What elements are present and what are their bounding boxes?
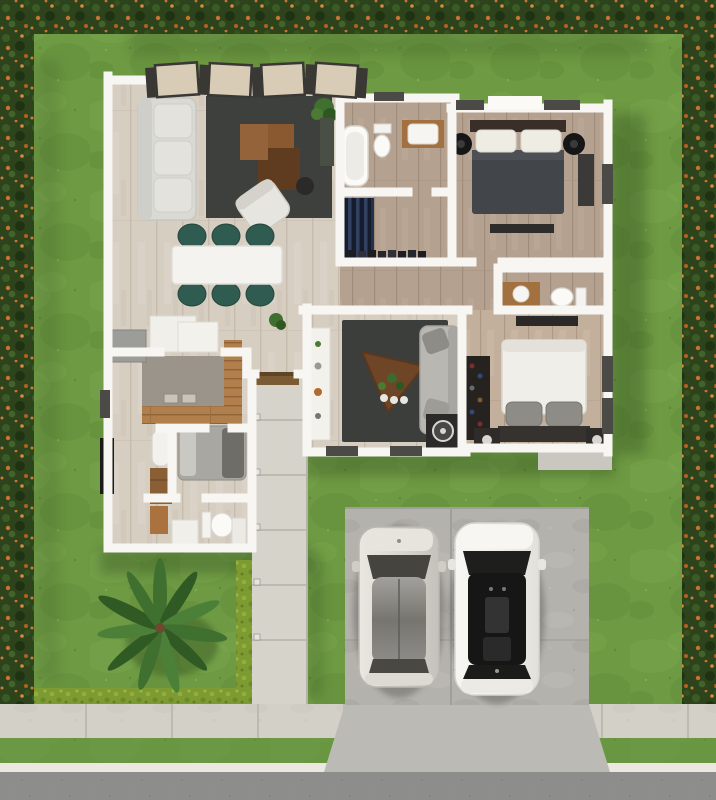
east-window-2 bbox=[602, 356, 613, 392]
floor-plan-render bbox=[0, 0, 716, 800]
table-plant-1 bbox=[387, 373, 397, 383]
hedge-left bbox=[0, 0, 34, 704]
nightstand-1-right-top bbox=[570, 140, 578, 148]
side-table bbox=[296, 177, 314, 195]
hedge-top bbox=[0, 0, 716, 34]
toilet-tank-top bbox=[374, 124, 391, 133]
bath3-vanity bbox=[172, 520, 198, 546]
dining-table bbox=[172, 246, 282, 284]
table-dish-3 bbox=[400, 396, 408, 404]
pergola-panel-1 bbox=[155, 62, 199, 97]
toilet-tank-right bbox=[576, 288, 586, 306]
wardrobe-shelf bbox=[464, 356, 490, 440]
doormat-stripe bbox=[253, 372, 299, 376]
sedan-interior-dot-2 bbox=[502, 587, 506, 591]
nightstand-1-left-top bbox=[457, 140, 465, 148]
vanity-right-sink bbox=[513, 286, 529, 302]
living-room bbox=[138, 96, 337, 236]
hedge-right bbox=[682, 0, 716, 704]
bed1-pillow-left bbox=[476, 130, 516, 152]
table-dish-2 bbox=[390, 396, 398, 404]
bath3-cabinet bbox=[232, 518, 246, 544]
scene-canvas bbox=[0, 0, 716, 800]
bedroom1-window-left bbox=[456, 100, 484, 110]
water-heater bbox=[152, 430, 170, 466]
front-walkway bbox=[252, 370, 307, 704]
refrigerator bbox=[110, 330, 146, 362]
east-window-3 bbox=[602, 398, 613, 434]
table-dish-1 bbox=[380, 394, 388, 402]
dresser bbox=[578, 154, 594, 206]
suv-rear-window bbox=[369, 659, 429, 673]
console-decor-bowl bbox=[315, 413, 321, 419]
pergola-panel-3 bbox=[261, 63, 305, 97]
daybed-pillow bbox=[180, 430, 196, 476]
suv-emblem bbox=[397, 539, 401, 543]
palm-trunk bbox=[155, 623, 165, 633]
daybed-throw bbox=[222, 428, 244, 478]
west-window bbox=[100, 390, 110, 418]
foot-bench bbox=[490, 224, 554, 233]
sedan-hood bbox=[461, 525, 533, 549]
sedan-interior-rear bbox=[483, 637, 511, 661]
sedan-windshield bbox=[463, 551, 531, 575]
coffee-table-shade bbox=[240, 124, 268, 160]
toilet-tank-lower bbox=[202, 512, 211, 538]
table-plant-3 bbox=[378, 382, 386, 390]
toilet-bowl-lower bbox=[211, 513, 233, 537]
sedan-mirror-left bbox=[448, 559, 456, 570]
sedan-mirror-right bbox=[538, 559, 546, 570]
pergola-panels bbox=[145, 62, 368, 98]
family-room bbox=[306, 320, 460, 448]
console-decor-figure bbox=[314, 388, 322, 396]
bedroom1-sill-panel bbox=[488, 96, 542, 109]
suv-mirror-right bbox=[438, 561, 446, 572]
toilet-bowl-top bbox=[374, 135, 390, 157]
suv-windshield bbox=[367, 555, 431, 579]
sedan-interior-console bbox=[485, 597, 509, 633]
suv-tailgate bbox=[365, 673, 433, 685]
bath3-wood-shelf bbox=[150, 506, 168, 534]
toilet-bowl-right bbox=[551, 288, 573, 306]
pergola-panel-2 bbox=[208, 63, 252, 97]
sideboard bbox=[320, 118, 334, 166]
bed2-pillow-left bbox=[506, 402, 542, 426]
sedan-emblem bbox=[495, 669, 499, 673]
sedan-trunk bbox=[461, 679, 533, 693]
white-sedan bbox=[448, 523, 546, 704]
low-hedge-vertical bbox=[236, 560, 252, 704]
sedan-interior-dot-1 bbox=[489, 587, 493, 591]
bed2-pillow-right bbox=[546, 402, 582, 426]
speaker-dot bbox=[440, 428, 446, 434]
media-console bbox=[516, 316, 578, 326]
kitchen-sink-right bbox=[182, 394, 196, 403]
silver-suv bbox=[352, 526, 446, 698]
vanity-sink-top bbox=[408, 124, 438, 144]
bathtub-basin bbox=[346, 132, 364, 180]
bed2-base bbox=[498, 426, 590, 442]
table-plant-2 bbox=[396, 382, 404, 390]
bed2-fold bbox=[502, 340, 586, 352]
pergola-panel-4 bbox=[314, 63, 358, 98]
kitchen-sink-left bbox=[164, 394, 178, 403]
family-window-right bbox=[390, 446, 422, 456]
driveway-apron bbox=[324, 704, 610, 772]
low-hedge-horizontal bbox=[34, 688, 252, 704]
bed1-pillow-right bbox=[521, 130, 561, 152]
kitchen-island bbox=[178, 322, 218, 352]
console-decor-vase bbox=[315, 363, 322, 370]
sectional-sofa bbox=[138, 98, 196, 220]
bath-top-window bbox=[374, 92, 404, 101]
family-window-left bbox=[326, 446, 358, 456]
console-decor-plant bbox=[315, 341, 321, 347]
bedroom1-window-right bbox=[544, 100, 580, 110]
suv-mirror-left bbox=[352, 561, 360, 572]
east-window-1 bbox=[602, 164, 613, 204]
pergola-beam-5 bbox=[356, 68, 368, 99]
dining-area bbox=[172, 224, 282, 306]
road bbox=[0, 772, 716, 800]
kitchen-counter-wood-front bbox=[142, 406, 242, 424]
